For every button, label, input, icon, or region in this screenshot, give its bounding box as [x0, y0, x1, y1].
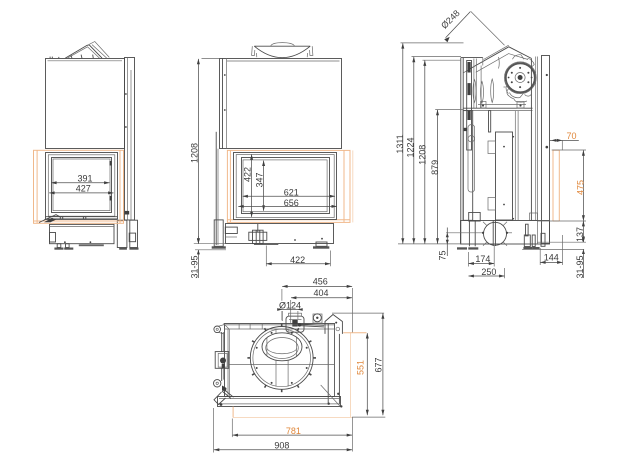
svg-text:347: 347: [254, 172, 264, 187]
svg-text:404: 404: [313, 288, 328, 298]
svg-text:70: 70: [566, 131, 576, 141]
svg-text:1208: 1208: [417, 145, 427, 165]
svg-text:250: 250: [481, 267, 496, 277]
svg-text:908: 908: [274, 441, 289, 451]
svg-text:427: 427: [76, 184, 91, 194]
svg-text:1224: 1224: [406, 137, 416, 157]
svg-text:391: 391: [77, 173, 92, 183]
svg-text:1311: 1311: [395, 134, 405, 153]
svg-text:656: 656: [284, 198, 299, 208]
svg-text:174: 174: [475, 254, 490, 264]
svg-text:144: 144: [544, 253, 559, 263]
svg-text:879: 879: [430, 160, 440, 175]
svg-text:475: 475: [575, 180, 585, 195]
svg-text:422: 422: [290, 255, 305, 265]
svg-text:Ø124: Ø124: [279, 300, 301, 310]
svg-text:31-95: 31-95: [189, 255, 199, 278]
svg-text:677: 677: [373, 357, 383, 372]
svg-text:621: 621: [284, 188, 299, 198]
svg-text:31-95: 31-95: [575, 255, 585, 278]
svg-text:551: 551: [356, 360, 366, 375]
svg-text:456: 456: [313, 277, 328, 287]
svg-text:422: 422: [242, 167, 252, 182]
svg-text:1208: 1208: [189, 143, 199, 163]
svg-text:781: 781: [286, 426, 301, 436]
svg-text:75: 75: [438, 250, 448, 260]
